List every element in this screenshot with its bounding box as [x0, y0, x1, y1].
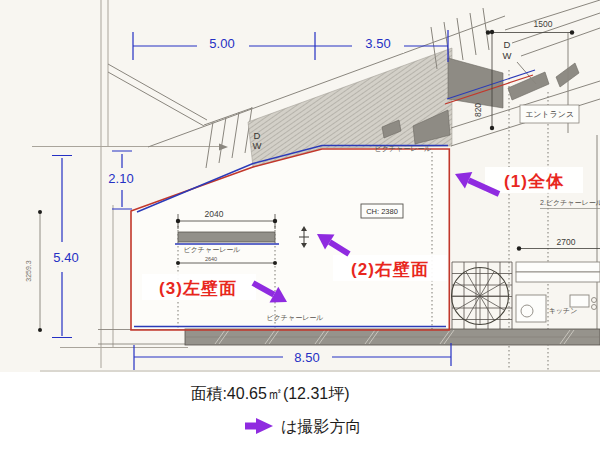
floor-plan-drawing: 5.00 3.50 2.10 5.40 8.50 1500 820 2700 3… — [0, 0, 600, 450]
dim-rail-width2-label: 2640 — [205, 256, 217, 262]
picture-rail-bottom-label: ピクチャーレール — [267, 314, 324, 321]
door-dw1-w-label: W — [253, 140, 262, 151]
dim-left-mm-label: 3259.3 — [25, 260, 32, 282]
floor-plan-page: 5.00 3.50 2.10 5.40 8.50 1500 820 2700 3… — [0, 0, 600, 450]
dim-bottom-label: 8.50 — [294, 350, 319, 365]
dim-top-left-label: 5.00 — [209, 36, 234, 51]
view-label-3: (3)左壁面 — [159, 279, 237, 298]
legend-caption: は撮影方向 — [281, 418, 361, 435]
dim-left-height-label: 5.40 — [53, 250, 78, 265]
dim-top-right-label: 3.50 — [365, 36, 390, 51]
dim-entrance-width-label: 1500 — [534, 19, 553, 29]
dim-right-span-label: 2700 — [557, 237, 576, 247]
door-dw2-w-label: W — [503, 50, 512, 61]
view-label-2: (2)右壁面 — [351, 260, 429, 279]
dim-rail-width-label: 2040 — [205, 209, 224, 219]
picture-rail-top-label: ピクチャーレール — [375, 145, 432, 152]
ceiling-height-label: CH: 2380 — [366, 207, 398, 216]
picture-rail-no2-label: 2.ピクチャーレール — [540, 199, 600, 206]
entrance-label: エントランス — [525, 110, 574, 119]
area-caption: 面積:40.65㎡(12.31坪) — [190, 385, 349, 402]
caption-block: 面積:40.65㎡(12.31坪) は撮影方向 — [190, 385, 361, 435]
kitchen-label: キッチン — [549, 307, 578, 314]
door-dw2-d-label: D — [504, 39, 511, 50]
dim-entrance-depth-label: 820 — [473, 103, 483, 117]
picture-rail-detail-label: ピクチャーレール — [184, 246, 241, 253]
dim-left-drop-label: 2.10 — [108, 171, 133, 186]
view-label-1: (1)全体 — [504, 172, 564, 191]
